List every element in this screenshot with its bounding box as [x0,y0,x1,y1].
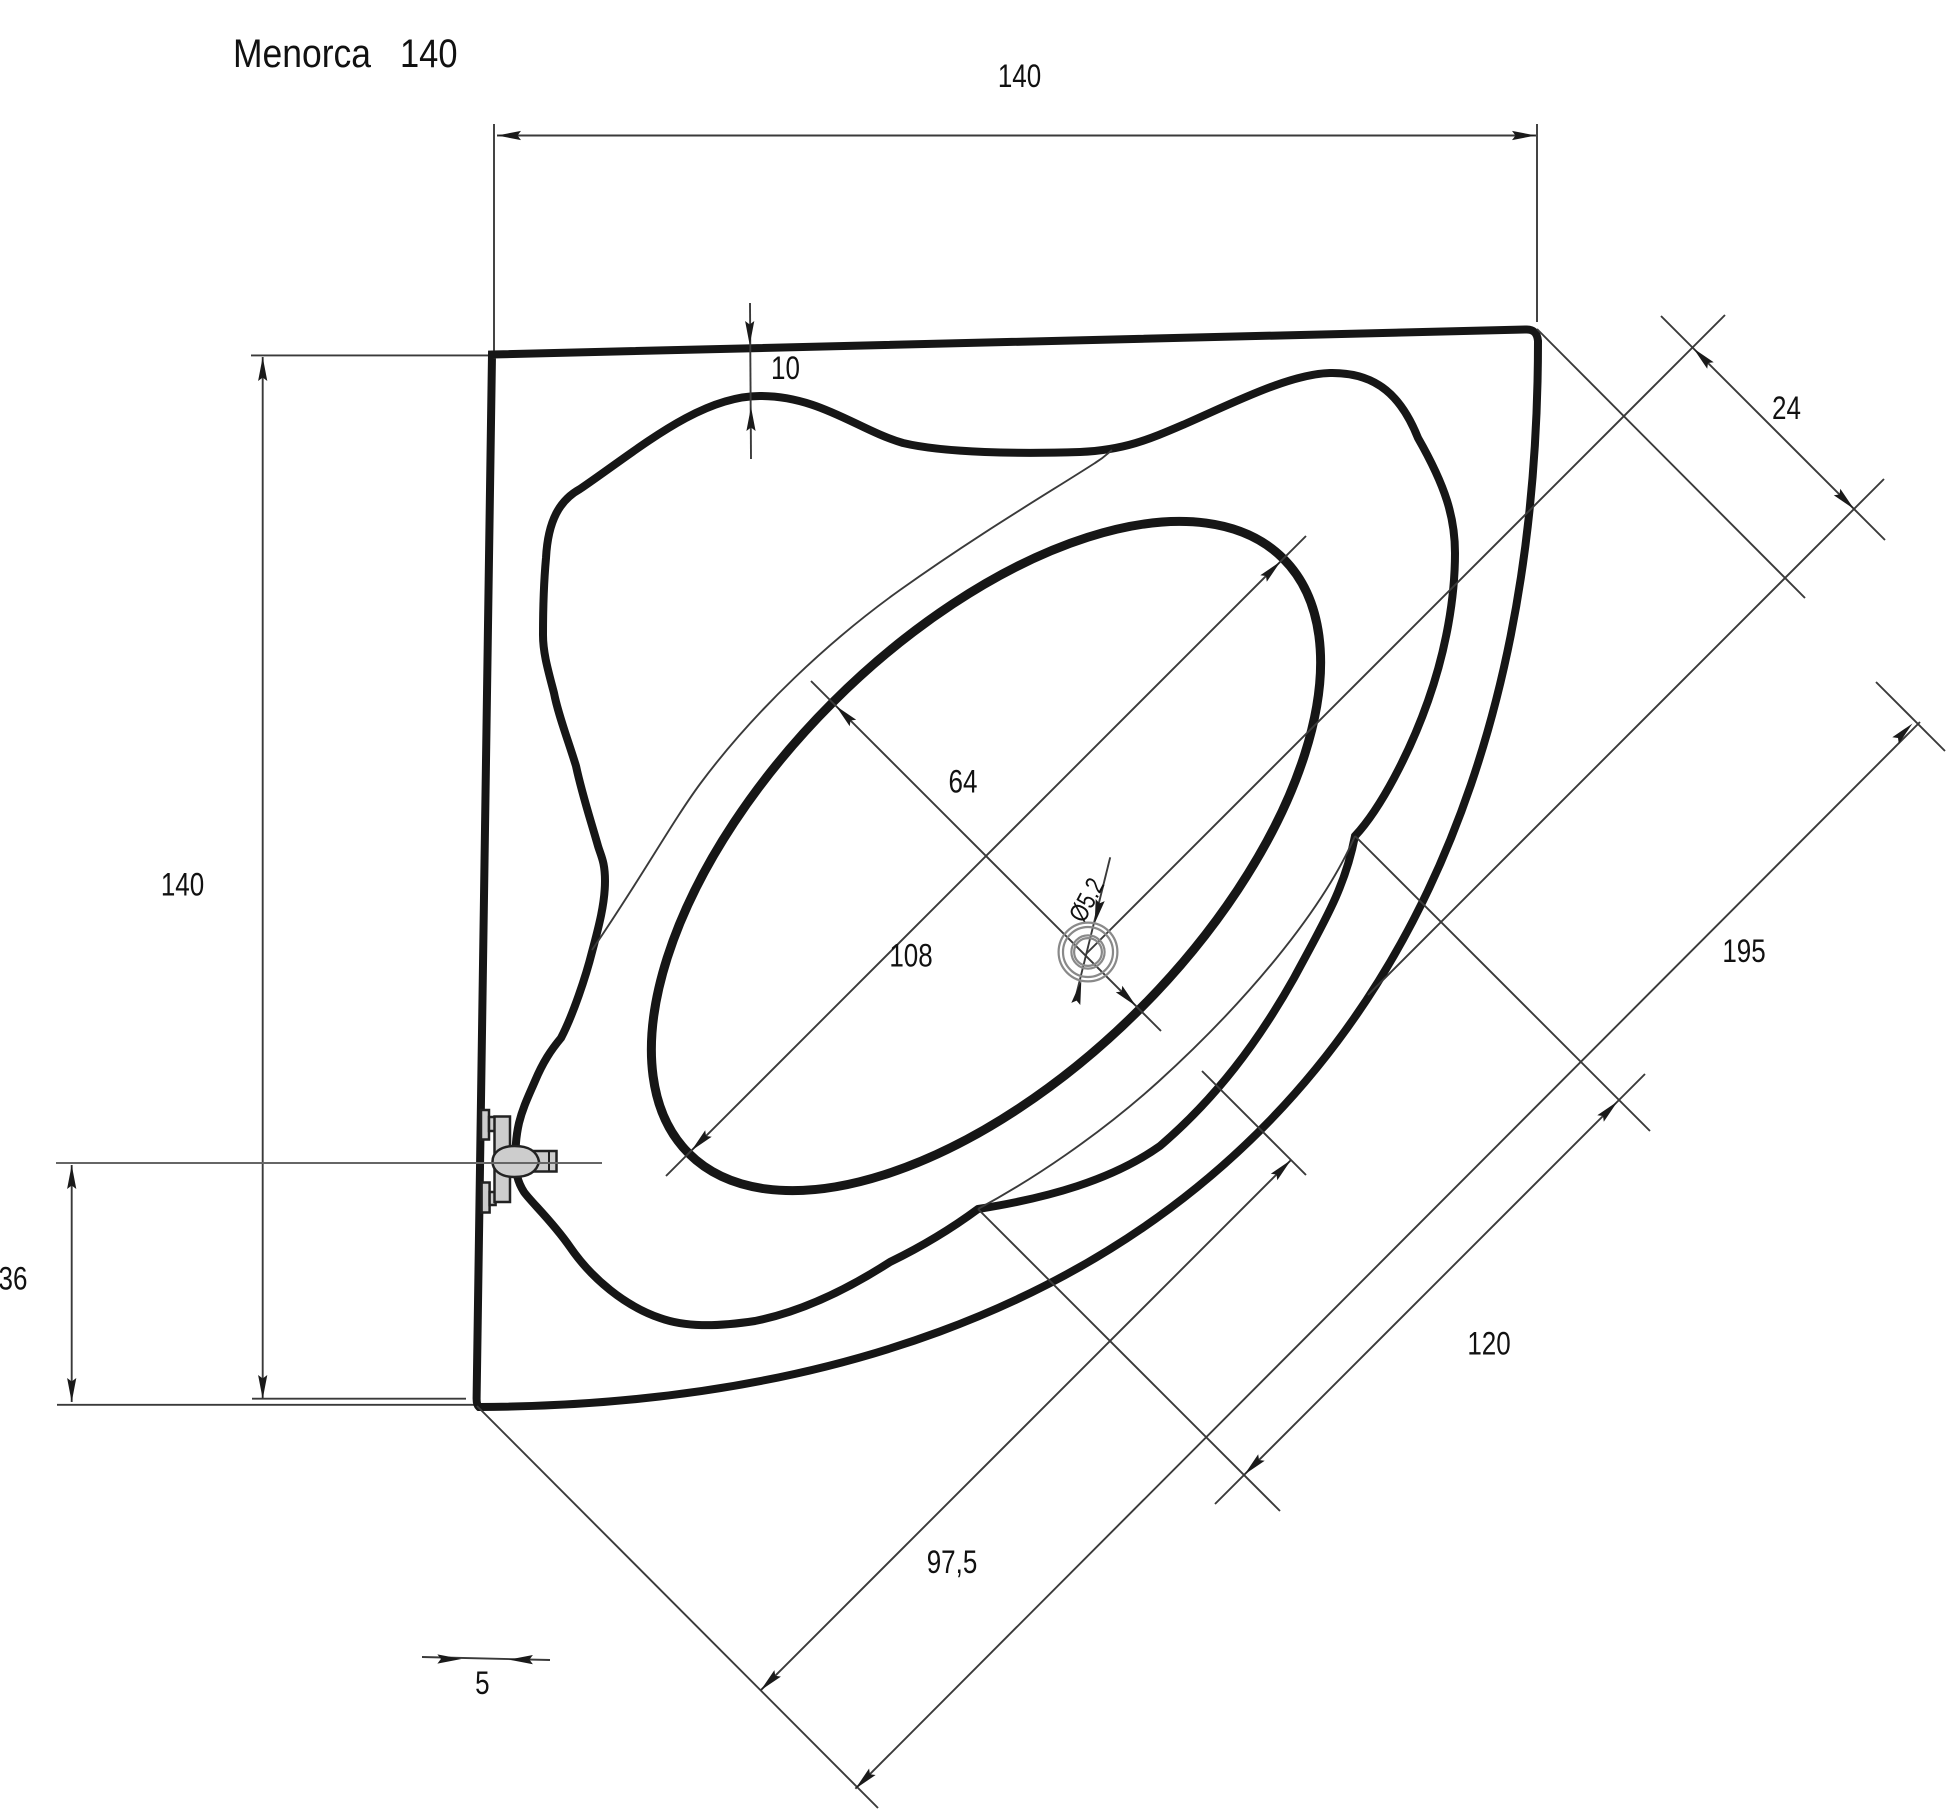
svg-text:108: 108 [889,938,932,974]
svg-text:24: 24 [1772,390,1801,426]
svg-text:140: 140 [161,867,204,903]
svg-text:Menorca: Menorca [233,32,372,76]
svg-text:120: 120 [1467,1326,1510,1362]
svg-text:5: 5 [475,1665,489,1701]
svg-text:195: 195 [1722,933,1765,969]
svg-text:140: 140 [998,58,1041,94]
svg-text:36: 36 [0,1261,27,1297]
svg-text:10: 10 [771,350,800,386]
svg-text:140: 140 [400,32,458,76]
svg-text:97,5: 97,5 [927,1544,978,1580]
svg-text:64: 64 [949,764,978,800]
